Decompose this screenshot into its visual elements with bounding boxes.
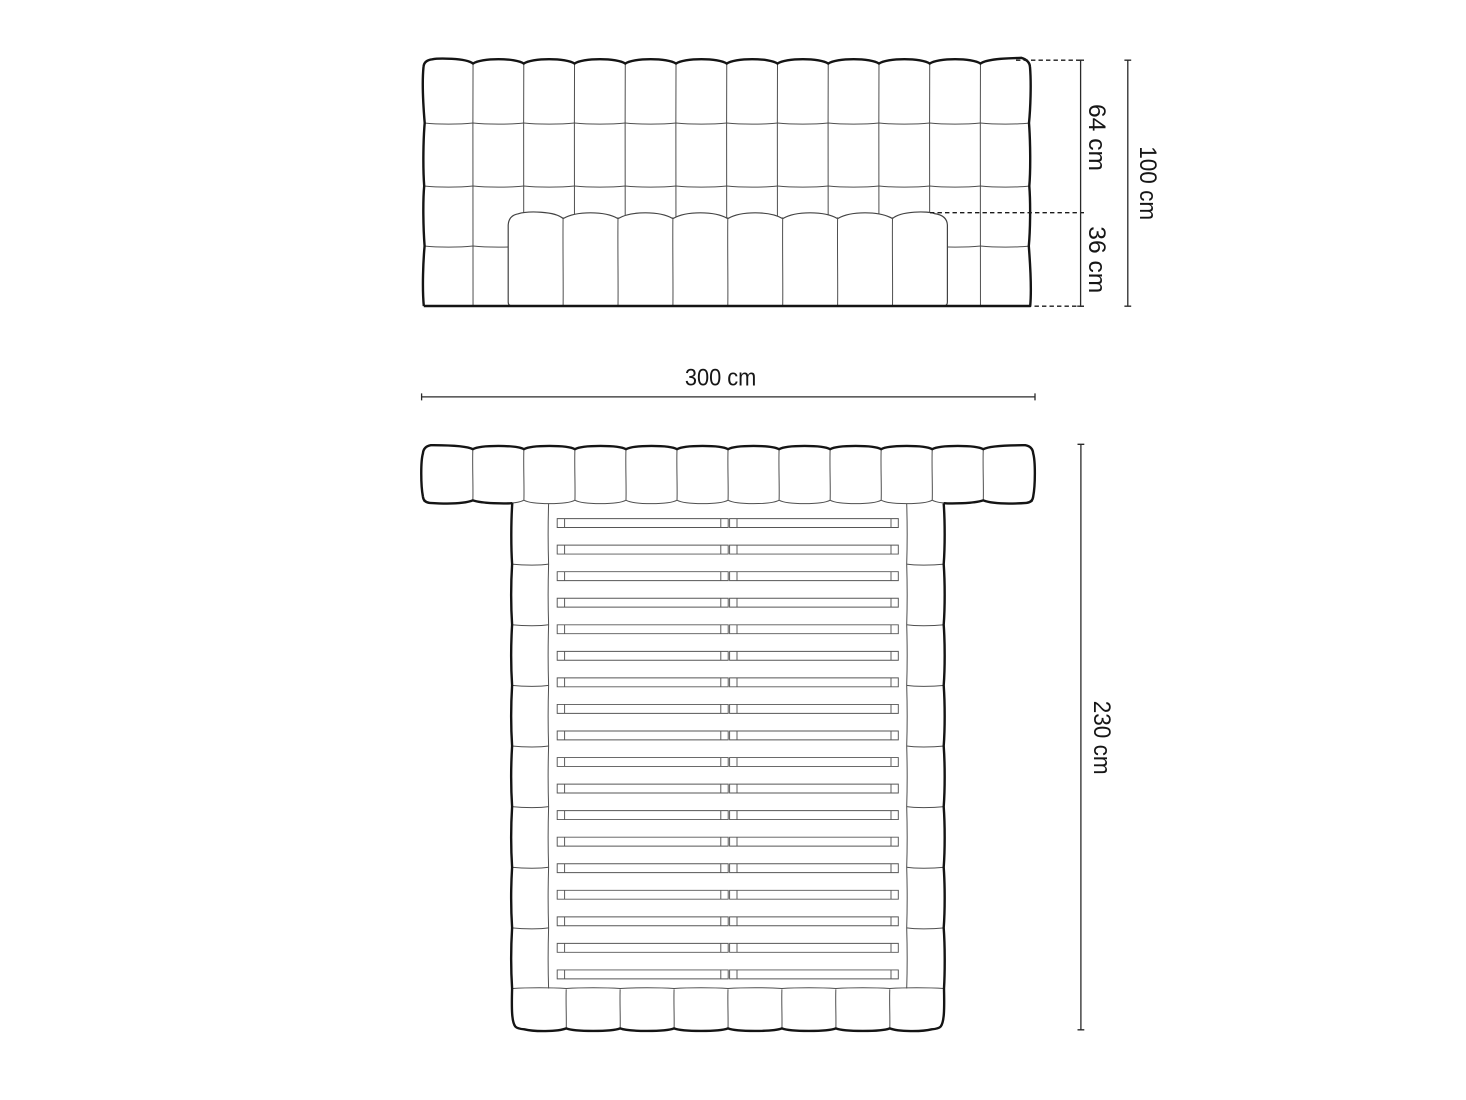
svg-text:36 cm: 36 cm — [1083, 226, 1110, 293]
svg-text:100 cm: 100 cm — [1134, 146, 1161, 220]
svg-text:230 cm: 230 cm — [1088, 701, 1115, 775]
svg-text:300 cm: 300 cm — [685, 364, 757, 391]
svg-text:64 cm: 64 cm — [1083, 104, 1110, 171]
